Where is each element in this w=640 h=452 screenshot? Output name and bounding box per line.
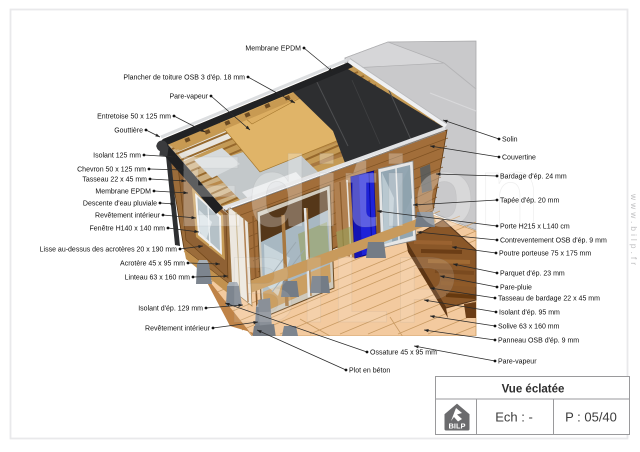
svg-text:Tapée d'ép. 20 mm: Tapée d'ép. 20 mm [500,198,559,205]
svg-text:Revêtement intérieur: Revêtement intérieur [145,326,211,333]
svg-text:Plancher de toiture OSB 3 d'ép: Plancher de toiture OSB 3 d'ép. 18 mm [123,75,245,82]
svg-text:Solive 63 x 160 mm: Solive 63 x 160 mm [498,324,560,331]
svg-text:Isolant 125 mm: Isolant 125 mm [93,153,141,160]
svg-text:Contreventement OSB d'ép. 9 mm: Contreventement OSB d'ép. 9 mm [500,238,607,245]
svg-text:BILP: BILP [228,237,462,342]
svg-text:Pare-pluie: Pare-pluie [500,285,532,292]
svg-text:Tasseau 22 x 45 mm: Tasseau 22 x 45 mm [82,177,147,184]
svg-text:Porte H215 x L140 cm: Porte H215 x L140 cm [500,224,570,231]
svg-text:www.bilp.fr: www.bilp.fr [629,193,639,268]
svg-text:BILP: BILP [448,422,465,431]
svg-text:Revêtement intérieur: Revêtement intérieur [95,213,161,220]
svg-text:Solin: Solin [502,137,518,144]
svg-text:Edition: Edition [177,136,544,248]
svg-text:Poutre porteuse 75 x 175 mm: Poutre porteuse 75 x 175 mm [499,251,591,258]
svg-text:Panneau OSB d'ép. 9 mm: Panneau OSB d'ép. 9 mm [498,338,579,345]
svg-text:Isolant d'ép. 129 mm: Isolant d'ép. 129 mm [138,306,203,313]
svg-text:Tasseau de bardage 22 x 45 mm: Tasseau de bardage 22 x 45 mm [498,296,600,303]
svg-text:Membrane EPDM: Membrane EPDM [95,189,151,196]
svg-text:Couvertine: Couvertine [502,155,536,162]
svg-text:Plot en béton: Plot en béton [349,368,390,375]
svg-text:Membrane EPDM: Membrane EPDM [245,46,301,53]
svg-text:Pare-vapeur: Pare-vapeur [498,359,537,366]
svg-text:Ech : -: Ech : - [495,410,533,425]
svg-text:Descente d'eau pluviale: Descente d'eau pluviale [83,201,157,208]
svg-text:Fenêtre H140 x 140 mm: Fenêtre H140 x 140 mm [90,226,166,233]
svg-text:Gouttière: Gouttière [114,128,143,135]
svg-text:Acrotère 45 x 95 mm: Acrotère 45 x 95 mm [120,261,185,268]
svg-text:Entretoise 50 x 125 mm: Entretoise 50 x 125 mm [97,114,171,121]
svg-text:Linteau 63 x 160 mm: Linteau 63 x 160 mm [125,275,191,282]
svg-text:Pare-vapeur: Pare-vapeur [169,94,208,101]
svg-text:Isolant d'ép. 95 mm: Isolant d'ép. 95 mm [499,310,560,317]
svg-text:Parquet d'ép. 23 mm: Parquet d'ép. 23 mm [500,271,565,278]
svg-text:Ossature 45 x 95 mm: Ossature 45 x 95 mm [370,350,437,357]
svg-text:Chevron 50 x 125 mm: Chevron 50 x 125 mm [77,167,146,174]
svg-text:P : 05/40: P : 05/40 [565,410,617,425]
svg-text:Bardage d'ép. 24 mm: Bardage d'ép. 24 mm [500,174,567,181]
svg-text:Vue éclatée: Vue éclatée [502,384,565,396]
svg-text:Lisse au-dessus des acrotères: Lisse au-dessus des acrotères 20 x 190 m… [40,247,178,254]
